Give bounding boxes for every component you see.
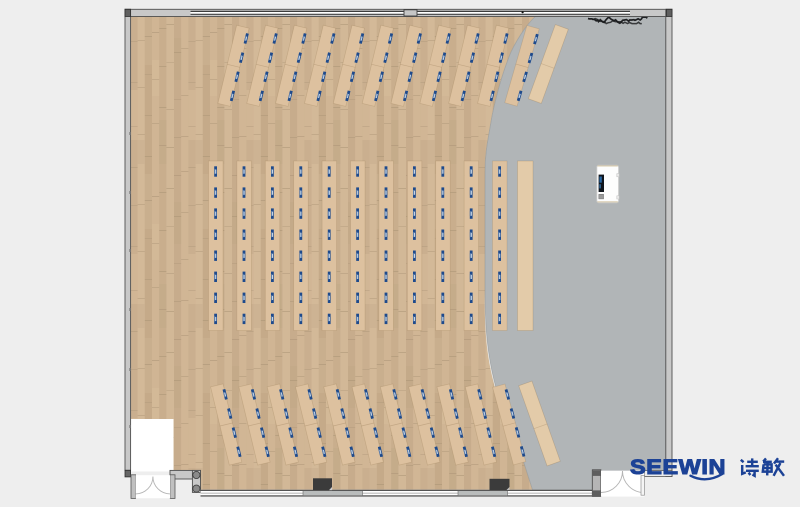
svg-text:SEEWIN: SEEWIN xyxy=(630,456,726,479)
